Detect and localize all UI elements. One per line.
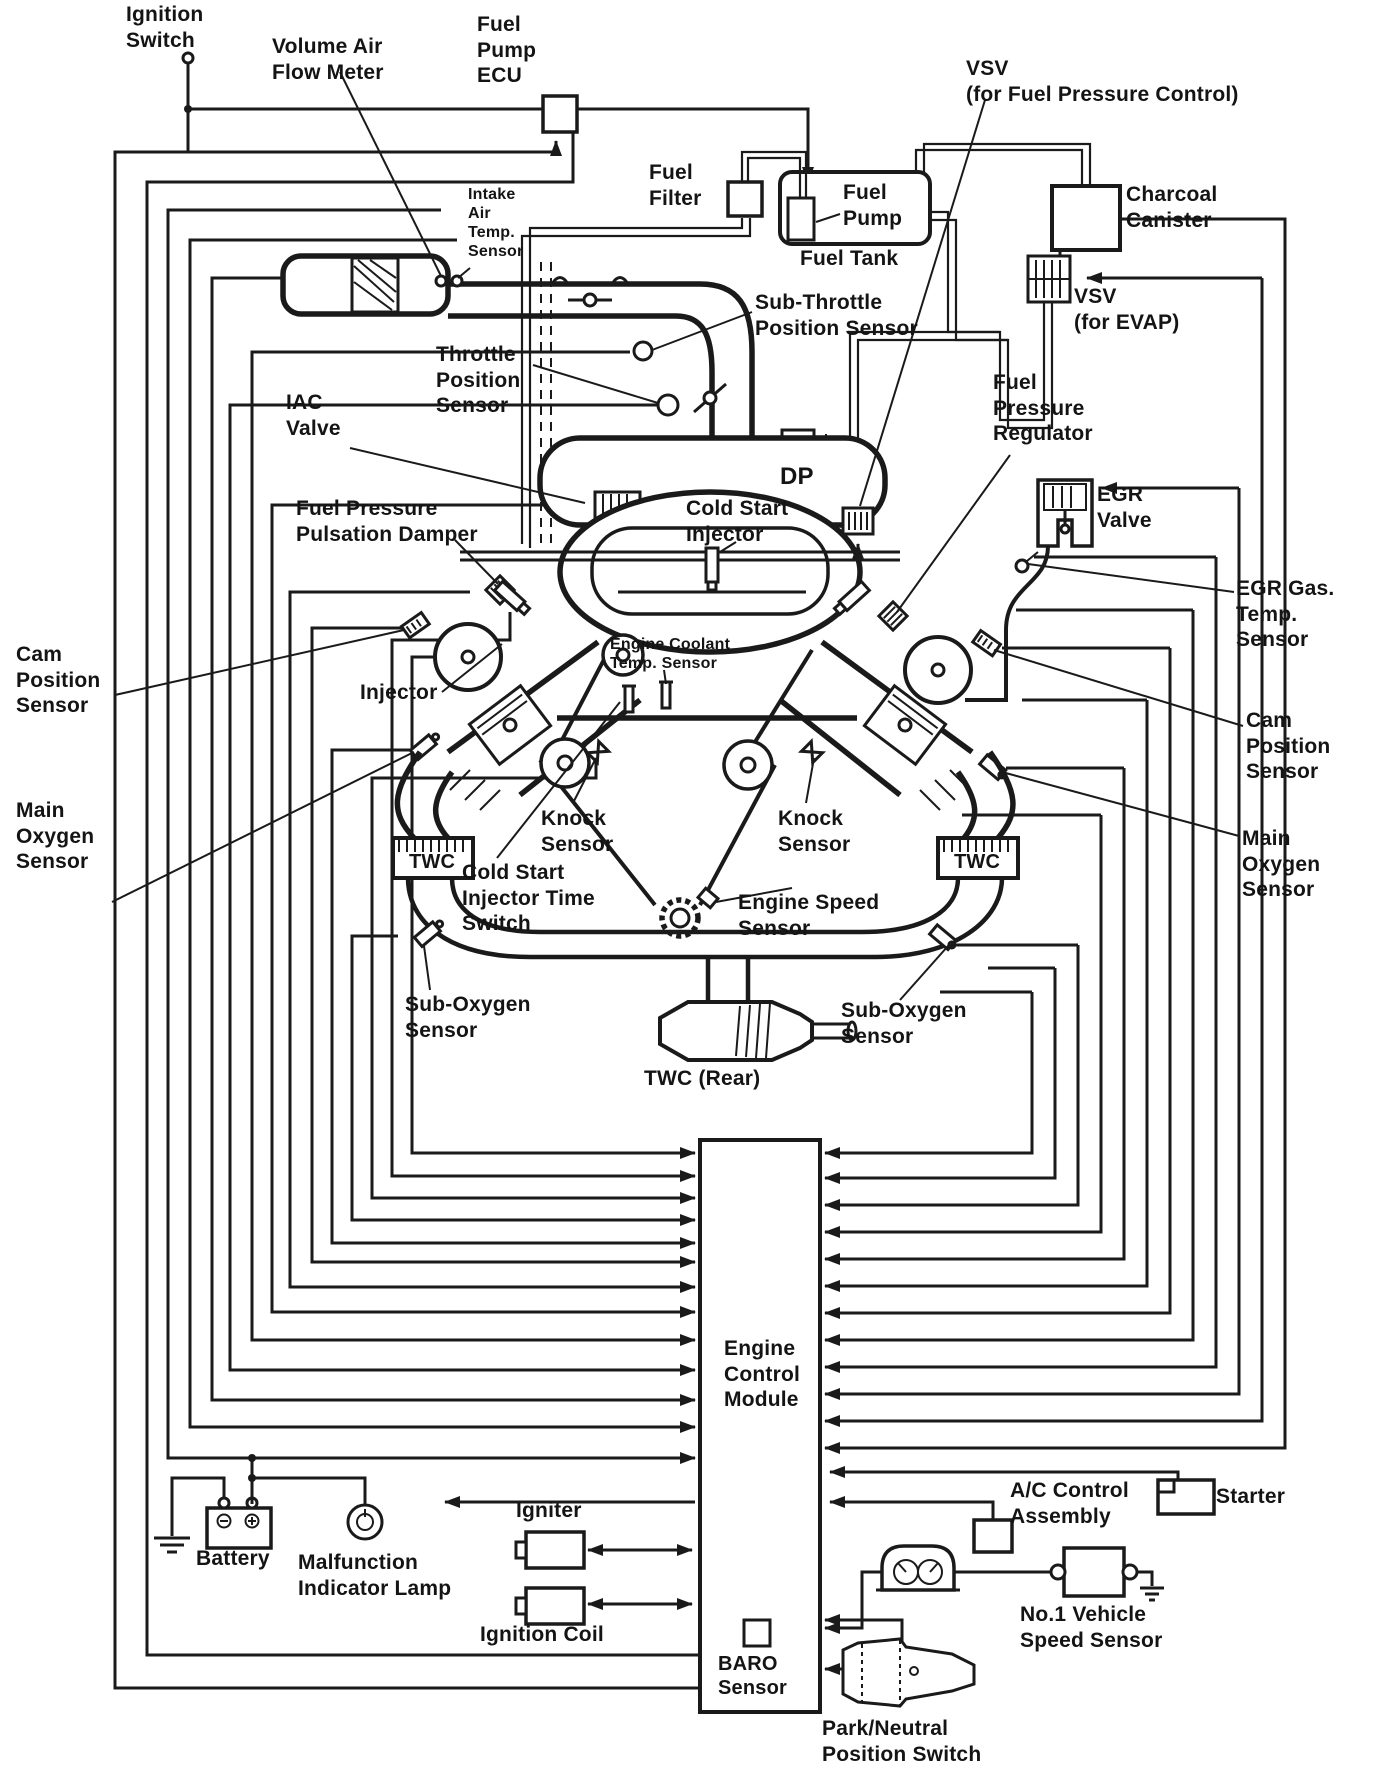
battery-box — [207, 1508, 271, 1548]
egr-valve-box — [1038, 480, 1092, 546]
charcoal-canister-box — [1052, 186, 1120, 250]
label-fuel-filter: Fuel Filter — [649, 160, 702, 211]
label-engine-control-module: Engine Control Module — [724, 1336, 800, 1413]
label-cam-position-sensor-left: Cam Position Sensor — [16, 642, 100, 719]
label-sub-oxygen-sensor-left: Sub-Oxygen Sensor — [405, 992, 531, 1043]
igniter-assembly — [516, 1532, 692, 1568]
knock-sensor-glyph-right — [801, 741, 822, 762]
mil-assembly — [248, 1474, 695, 1539]
label-ac-control-assembly: A/C Control Assembly — [1010, 1478, 1129, 1529]
starter-box — [1158, 1480, 1214, 1514]
cam-position-sensor-glyph-right — [973, 631, 1001, 656]
ac-control-box — [974, 1520, 1012, 1552]
label-pulsation-damper: Fuel Pressure Pulsation Damper — [296, 496, 478, 547]
label-ignition-switch: Ignition Switch — [126, 2, 203, 53]
label-engine-speed-sensor: Engine Speed Sensor — [738, 890, 879, 941]
label-fuel-tank: Fuel Tank — [800, 246, 898, 272]
engine-control-system-diagram: Ignition Switch Volume Air Flow Meter Fu… — [0, 0, 1376, 1776]
sub-throttle-position-sensor-glyph — [634, 342, 652, 360]
twc-rear-shape — [660, 1002, 856, 1060]
label-no1-vehicle-speed-sensor: No.1 Vehicle Speed Sensor — [1020, 1602, 1162, 1653]
label-twc-rear: TWC (Rear) — [644, 1066, 760, 1092]
label-battery: Battery — [196, 1546, 270, 1572]
park-neutral-switch-assembly — [825, 1620, 974, 1706]
knock-sensor-glyph-left — [587, 741, 608, 762]
label-main-oxygen-sensor-left: Main Oxygen Sensor — [16, 798, 94, 875]
label-vsv-fuel-pressure: VSV (for Fuel Pressure Control) — [966, 56, 1239, 107]
wiring-artwork — [0, 0, 1376, 1776]
label-cold-start-injector: Cold Start Injector — [686, 496, 788, 547]
label-vsv-evap: VSV (for EVAP) — [1074, 284, 1179, 335]
egr-gas-temp-sensor-glyph — [1016, 552, 1038, 572]
sub-oxygen-sensor-glyph-left — [414, 917, 445, 946]
left-wire-harness — [115, 132, 700, 1688]
label-cam-position-sensor-right: Cam Position Sensor — [1246, 708, 1330, 785]
vafm-sensor — [436, 276, 446, 286]
label-charcoal-canister: Charcoal Canister — [1126, 182, 1217, 233]
label-egr-valve: EGR Valve — [1097, 482, 1152, 533]
ground-symbol — [154, 1538, 190, 1552]
fuel-pump-ecu-box — [543, 96, 577, 132]
label-sub-oxygen-sensor-right: Sub-Oxygen Sensor — [841, 998, 967, 1049]
igniter-box — [526, 1532, 584, 1568]
label-intake-air-temp-sensor: Intake Air Temp. Sensor — [468, 186, 523, 262]
cold-start-injector-glyph — [706, 548, 718, 590]
fuel-pressure-regulator-glyph — [879, 602, 907, 630]
label-twc-left: TWC — [409, 850, 455, 874]
label-knock-sensor-left: Knock Sensor — [541, 806, 613, 857]
label-igniter: Igniter — [516, 1498, 582, 1524]
intake-air-temp-sensor-glyph — [452, 276, 462, 286]
label-sub-throttle-position-sensor: Sub-Throttle Position Sensor — [755, 290, 918, 341]
label-engine-coolant-temp-sensor: Engine Coolant Temp. Sensor — [610, 636, 730, 674]
label-cold-start-injector-time-switch: Cold Start Injector Time Switch — [462, 860, 595, 937]
label-dp: DP — [780, 462, 814, 491]
label-malfunction-indicator-lamp: Malfunction Indicator Lamp — [298, 1550, 451, 1601]
label-knock-sensor-right: Knock Sensor — [778, 806, 850, 857]
label-twc-right: TWC — [954, 850, 1000, 874]
label-throttle-position-sensor: Throttle Position Sensor — [436, 342, 520, 419]
label-fuel-pump-ecu: Fuel Pump ECU — [477, 12, 536, 89]
ignition-coil-box — [526, 1588, 584, 1624]
label-ignition-coil: Ignition Coil — [480, 1622, 604, 1648]
label-main-oxygen-sensor-right: Main Oxygen Sensor — [1242, 826, 1320, 903]
label-fuel-pump: Fuel Pump — [843, 180, 902, 231]
label-starter: Starter — [1216, 1484, 1285, 1510]
cam-position-sensor-glyph-left — [402, 613, 430, 638]
ecm-box — [700, 1140, 820, 1712]
vss-box — [1064, 1548, 1124, 1596]
ignition-coil-assembly — [516, 1588, 692, 1624]
piston-left — [469, 686, 550, 764]
label-iac-valve: IAC Valve — [286, 390, 341, 441]
battery-assembly — [154, 1454, 271, 1552]
label-volume-air-flow-meter: Volume Air Flow Meter — [272, 34, 384, 85]
label-park-neutral-position-switch: Park/Neutral Position Switch — [822, 1716, 981, 1767]
label-fuel-pressure-regulator: Fuel Pressure Regulator — [993, 370, 1093, 447]
label-egr-gas-temp-sensor: EGR Gas. Temp. Sensor — [1236, 576, 1334, 653]
fuel-filter-box — [728, 182, 762, 216]
throttle-position-sensor-glyph — [658, 395, 678, 415]
engine-coolant-temp-sensor-glyph — [622, 682, 673, 712]
label-injector: Injector — [360, 680, 437, 706]
volume-air-flow-meter-body — [283, 256, 448, 314]
label-baro-sensor: BARO Sensor — [718, 1652, 787, 1701]
egr-pipe — [965, 546, 1048, 700]
